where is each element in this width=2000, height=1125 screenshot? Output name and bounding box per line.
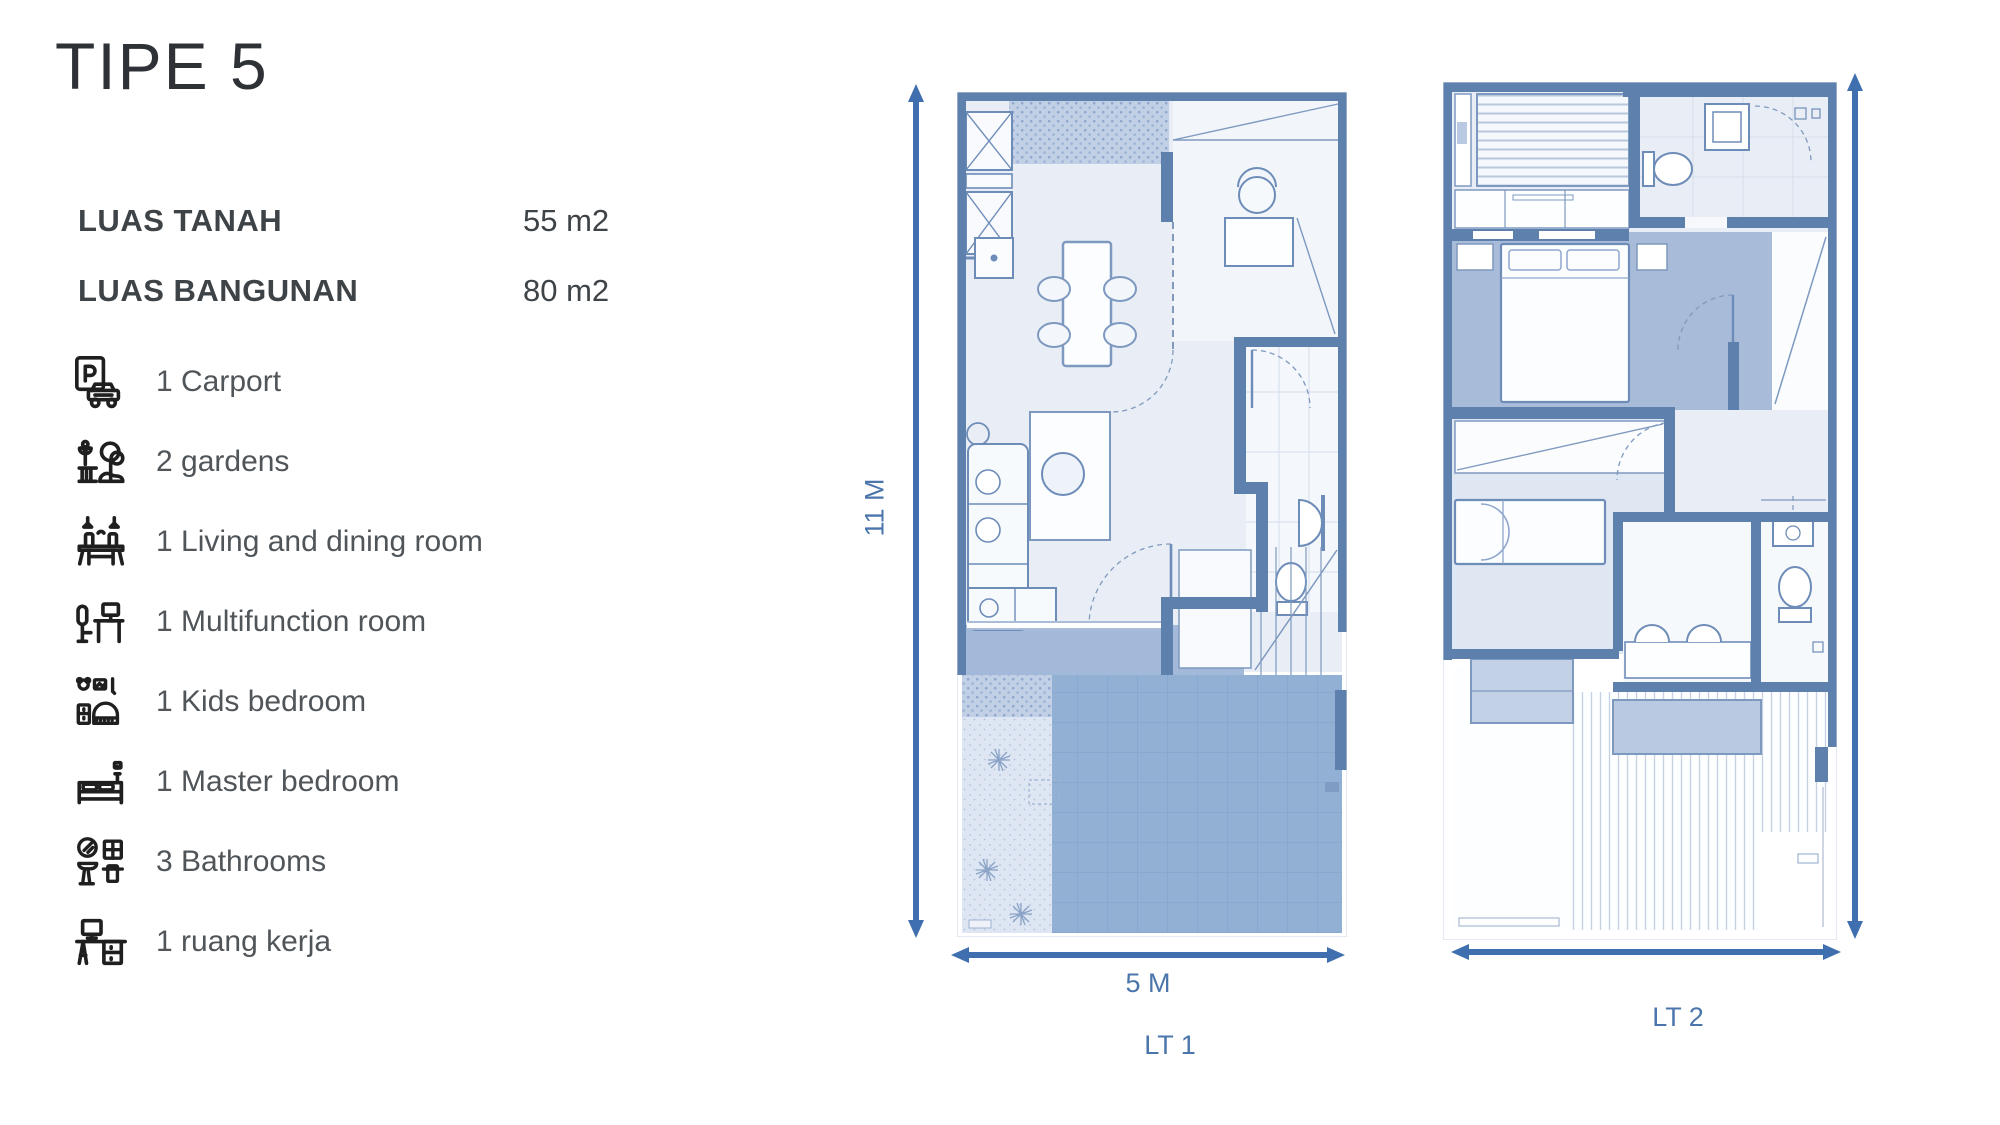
feature-label: 1 Living and dining room — [156, 525, 483, 559]
carport-icon — [72, 353, 130, 411]
master-bedroom-icon — [72, 753, 130, 811]
feature-carport: 1 Carport — [72, 342, 281, 422]
lt1-height-arrow — [905, 83, 927, 939]
dining-icon — [72, 513, 130, 571]
spec-value-luas-tanah: 55 m2 — [523, 203, 609, 239]
slide: TIPE 5 LUAS TANAH 55 m2 LUAS BANGUNAN 80… — [0, 0, 2000, 1125]
feature-bathrooms: 3 Bathrooms — [72, 822, 326, 902]
feature-kids-bedroom: 1 Kids bedroom — [72, 662, 366, 742]
lt1-height-dim: 11 M — [860, 467, 891, 537]
workspace-icon — [72, 913, 130, 971]
kids-bedroom-icon — [72, 673, 130, 731]
lt2-width-arrow — [1450, 941, 1842, 963]
feature-ruang-kerja: 1 ruang kerja — [72, 902, 331, 982]
feature-living-dining: 1 Living and dining room — [72, 502, 483, 582]
multifunction-icon — [72, 593, 130, 651]
feature-multifunction: 1 Multifunction room — [72, 582, 426, 662]
lt2-label: LT 2 — [1618, 1002, 1738, 1033]
feature-label: 1 Master bedroom — [156, 765, 399, 799]
lt1-width-dim: 5 M — [1088, 968, 1208, 999]
feature-master-bedroom: 1 Master bedroom — [72, 742, 399, 822]
spec-label-luas-tanah: LUAS TANAH — [78, 203, 282, 239]
lt1-width-arrow — [950, 944, 1346, 966]
lt2-height-arrow — [1844, 72, 1866, 940]
feature-label: 1 Multifunction room — [156, 605, 426, 639]
feature-gardens: 2 gardens — [72, 422, 289, 502]
floor-plan-lt1 — [957, 92, 1347, 937]
page-title: TIPE 5 — [55, 28, 269, 104]
spec-label-luas-bangunan: LUAS BANGUNAN — [78, 273, 358, 309]
feature-label: 3 Bathrooms — [156, 845, 326, 879]
feature-label: 1 Kids bedroom — [156, 685, 366, 719]
feature-label: 2 gardens — [156, 445, 289, 479]
lt1-label: LT 1 — [1110, 1030, 1230, 1061]
garden-icon — [72, 433, 130, 491]
feature-label: 1 Carport — [156, 365, 281, 399]
floor-plan-lt2 — [1443, 82, 1837, 940]
spec-value-luas-bangunan: 80 m2 — [523, 273, 609, 309]
bathroom-icon — [72, 833, 130, 891]
feature-label: 1 ruang kerja — [156, 925, 331, 959]
